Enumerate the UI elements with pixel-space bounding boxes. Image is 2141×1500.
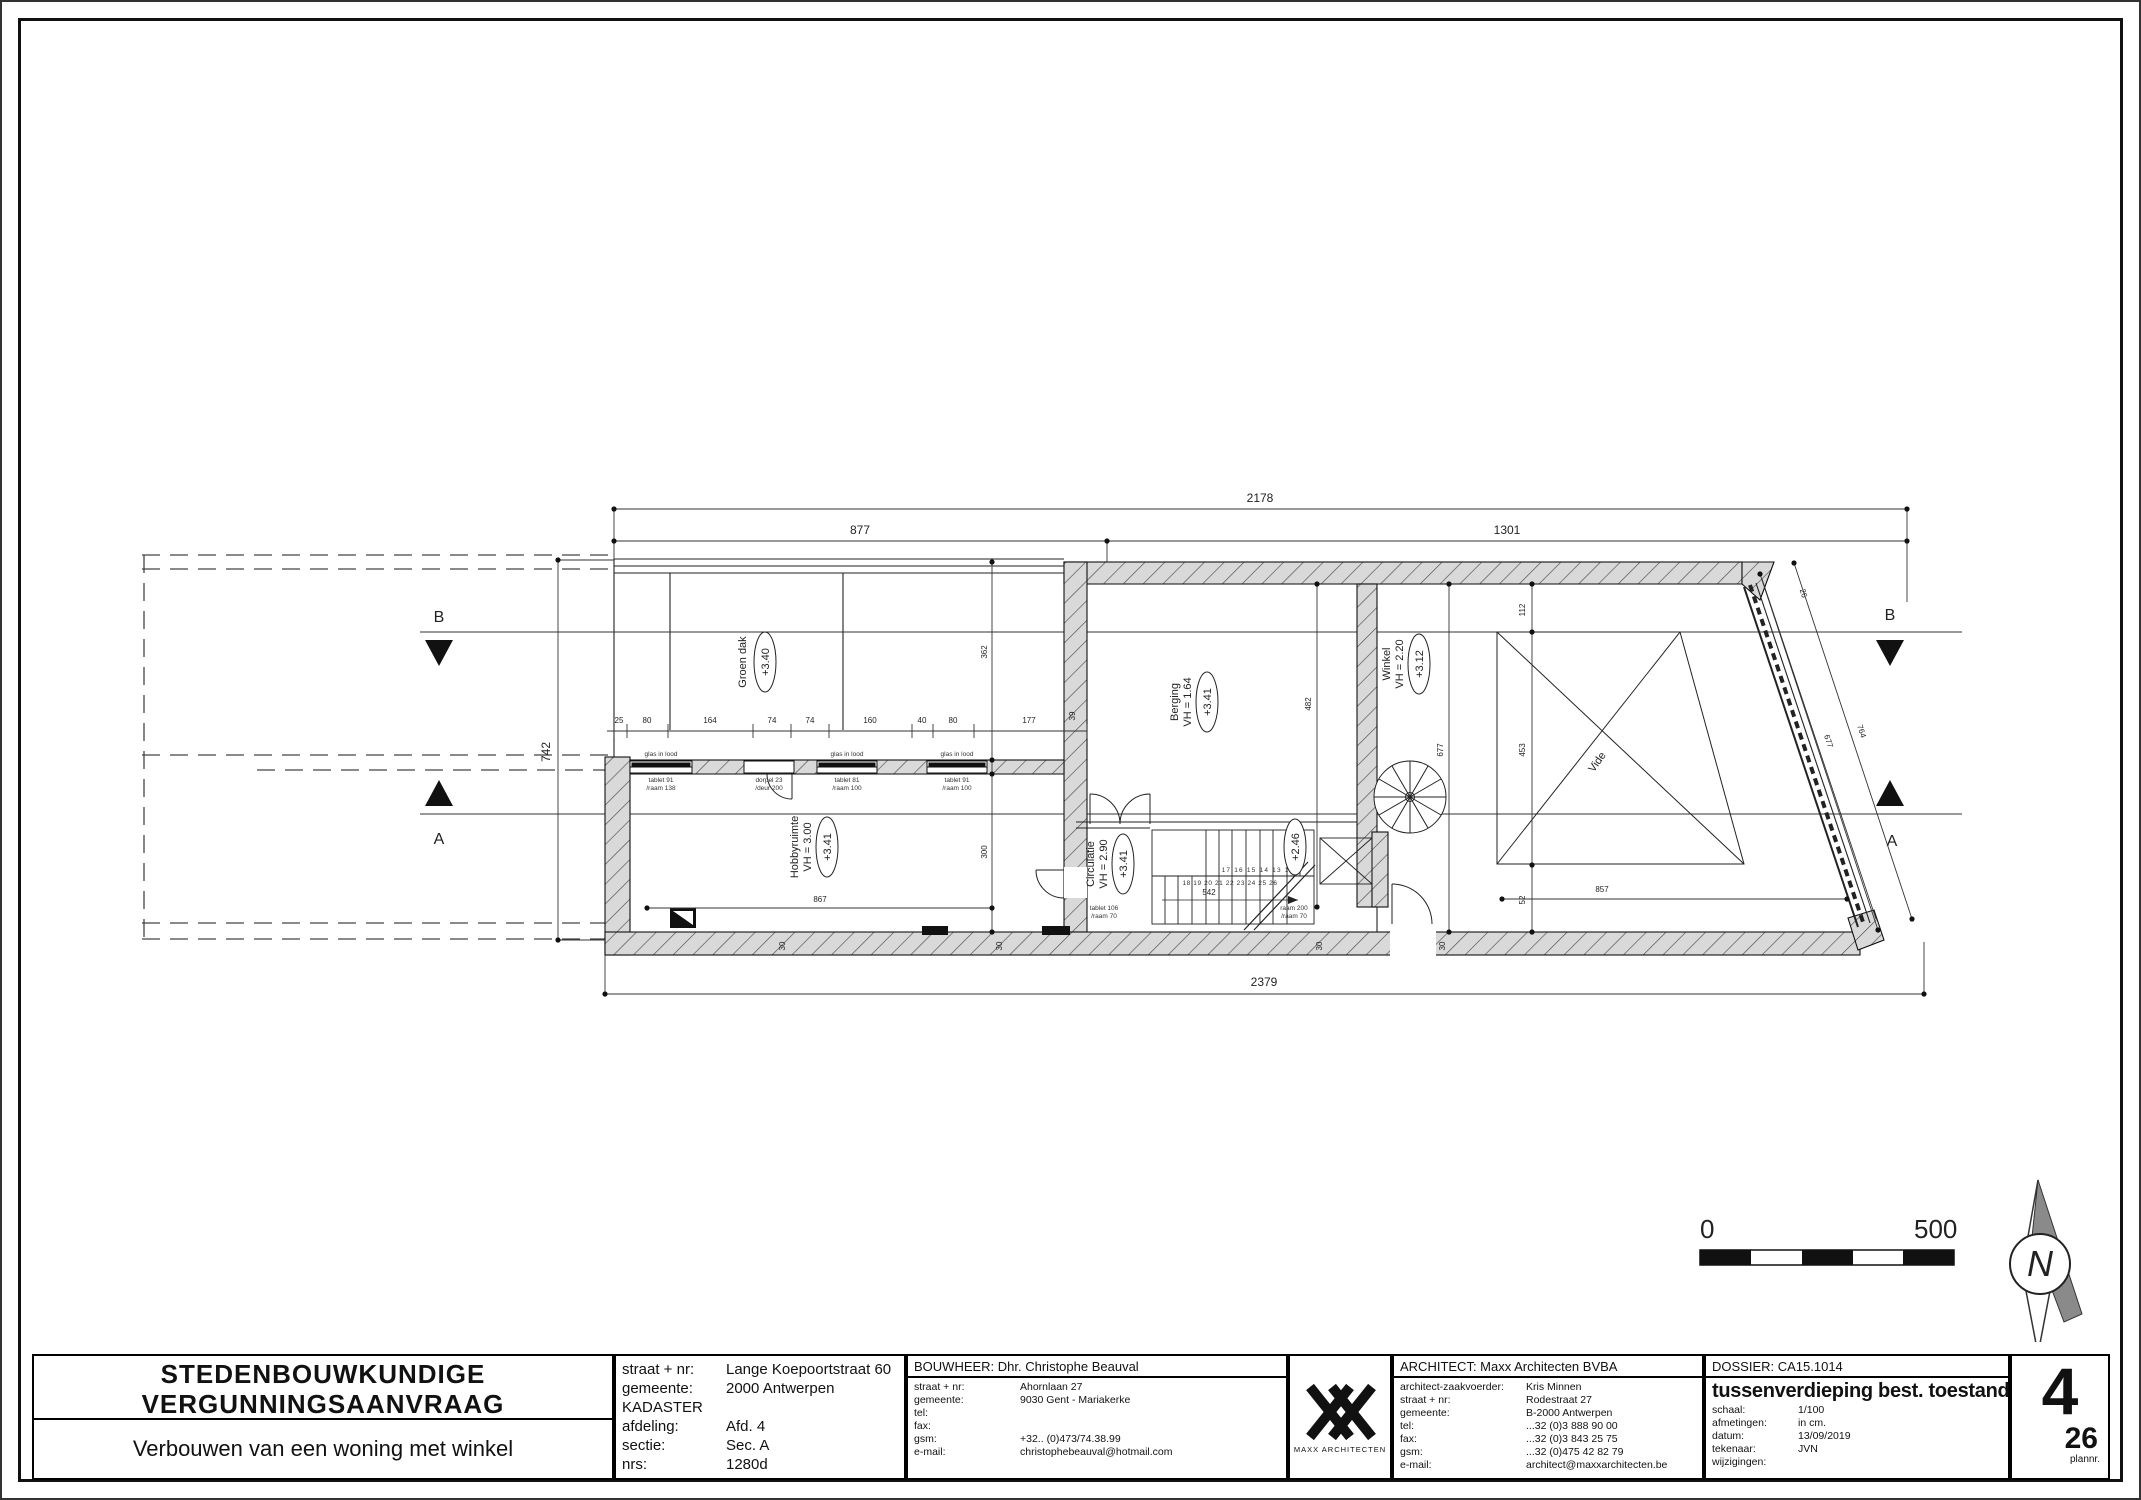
dossier-row: wijzigingen:: [1712, 1456, 2002, 1469]
dossier-row: datum:13/09/2019: [1712, 1430, 2002, 1443]
dim-2379: 2379: [1251, 975, 1278, 989]
field-label: datum:: [1712, 1430, 1798, 1443]
bouwheer-box: BOUWHEER: Dhr. Christophe Beauval straat…: [906, 1354, 1288, 1480]
field-label: gemeente:: [1400, 1407, 1526, 1420]
fixture-label: /raam 100: [832, 785, 862, 792]
architect-logo-box: MAXX ARCHITECTEN: [1288, 1354, 1392, 1480]
architect-row: fax:...32 (0)3 843 25 75: [1400, 1433, 1696, 1446]
field-label: nrs:: [622, 1455, 726, 1474]
spiral-stair: [1374, 761, 1446, 833]
room-level: +3.40: [760, 648, 772, 676]
sheet-number: 4: [2012, 1356, 2108, 1422]
dim-482: 482: [1304, 697, 1313, 711]
field-value: in cm.: [1798, 1417, 1826, 1429]
field-label: fax:: [914, 1420, 1020, 1433]
room-level: +3.41: [1202, 688, 1214, 716]
scale-start-label: 0: [1700, 1214, 1714, 1244]
dim-30: 30: [778, 941, 787, 950]
dim-30: 30: [1315, 941, 1324, 950]
section-label-a: A: [434, 831, 445, 848]
field-value: 1280d: [726, 1456, 768, 1473]
dim-857: 857: [1595, 885, 1609, 894]
fixture-label: /raam 70: [1091, 913, 1117, 920]
field-value: 1/100: [1798, 1404, 1824, 1416]
dossier-row: afmetingen:in cm.: [1712, 1417, 2002, 1430]
bouwheer-row: gemeente:9030 Gent - Mariakerke: [914, 1394, 1280, 1407]
field-value: Lange Koepoortstraat 60: [726, 1361, 891, 1378]
section-marker-b-right: B: [1876, 607, 1904, 666]
field-label: sectie:: [622, 1436, 726, 1455]
room-name: Hobbyruimte: [789, 816, 801, 878]
field-value: christophebeauval@hotmail.com: [1020, 1446, 1173, 1458]
site-row: afdeling:Afd. 4: [622, 1417, 898, 1436]
field-value: architect@maxxarchitecten.be: [1526, 1459, 1667, 1471]
stair-tread-numbers-upper: 17 16 15 14 13 12: [1222, 867, 1295, 874]
room-label-vide: Vide: [1586, 750, 1608, 775]
field-value: Afd. 4: [726, 1418, 765, 1435]
logo-caption: MAXX ARCHITECTEN: [1294, 1445, 1386, 1454]
dossier-header: DOSSIER: CA15.1014: [1706, 1356, 2008, 1378]
field-label: afdeling:: [622, 1417, 726, 1436]
dim-1301: 1301: [1494, 523, 1521, 537]
field-label: gemeente:: [622, 1379, 726, 1398]
room-label-groen-dak: Groen dak +3.40: [737, 632, 776, 692]
fixture-label: /raam 138: [646, 785, 676, 792]
site-info-box: straat + nr:Lange Koepoortstraat 60 geme…: [614, 1354, 906, 1480]
dim-39: 39: [1068, 711, 1077, 720]
field-value: +32.. (0)473/74.38.99: [1020, 1433, 1121, 1445]
field-label: afmetingen:: [1712, 1417, 1798, 1430]
site-row: straat + nr:Lange Koepoortstraat 60: [622, 1360, 898, 1379]
field-label: wijzigingen:: [1712, 1456, 1798, 1469]
field-value: 13/09/2019: [1798, 1430, 1851, 1442]
dim-chain: 40: [918, 716, 927, 725]
application-title-line1: STEDENBOUWKUNDIGE: [34, 1359, 612, 1389]
plannr-label: plannr.: [2012, 1454, 2108, 1465]
room-name: Groen dak: [737, 636, 749, 688]
room-level: +3.12: [1414, 650, 1426, 678]
bouwheer-row: e-mail:christophebeauval@hotmail.com: [914, 1446, 1280, 1459]
maxx-logo-icon: [1300, 1381, 1380, 1443]
sheet-total: 26: [2012, 1424, 2108, 1454]
field-label: schaal:: [1712, 1404, 1798, 1417]
dim-diag-764: 764: [1855, 723, 1868, 739]
field-value: Kris Minnen: [1526, 1381, 1581, 1393]
fixture-label: tablet 81: [835, 777, 860, 784]
dim-362: 362: [980, 645, 989, 659]
field-label: tel:: [914, 1407, 1020, 1420]
field-value: 9030 Gent - Mariakerke: [1020, 1394, 1130, 1406]
dim-chain: 80: [949, 716, 958, 725]
field-value: JVN: [1798, 1443, 1818, 1455]
section-label-b: B: [1885, 607, 1896, 624]
bouwheer-row: straat + nr:Ahornlaan 27: [914, 1381, 1280, 1394]
north-label: N: [2027, 1243, 2054, 1284]
bouwheer-row: gsm:+32.. (0)473/74.38.99: [914, 1433, 1280, 1446]
dim-30: 30: [1438, 941, 1447, 950]
field-label: gsm:: [1400, 1446, 1526, 1459]
dim-867: 867: [813, 895, 827, 904]
title-block: STEDENBOUWKUNDIGE VERGUNNINGSAANVRAAG Ve…: [32, 1354, 2110, 1480]
dossier-box: DOSSIER: CA15.1014 tussenverdieping best…: [1704, 1354, 2010, 1480]
room-label-berging: Berging VH = 1.64 +3.41: [1169, 672, 1218, 732]
dim-chain: 160: [863, 716, 877, 725]
site-row: sectie:Sec. A: [622, 1436, 898, 1455]
architect-row: gsm:...32 (0)475 42 82 79: [1400, 1446, 1696, 1459]
application-title: STEDENBOUWKUNDIGE VERGUNNINGSAANVRAAG: [34, 1356, 612, 1420]
room-name: Winkel: [1381, 647, 1393, 680]
field-value: Sec. A: [726, 1437, 769, 1454]
dim-chain: 164: [703, 716, 717, 725]
drawing-sheet: B A B A: [0, 0, 2141, 1500]
fixture-label: /raam 70: [1281, 913, 1307, 920]
room-vh: VH = 3.00: [802, 822, 814, 871]
field-value: Ahornlaan 27: [1020, 1381, 1082, 1393]
dim-chain: 74: [806, 716, 815, 725]
field-value: ...32 (0)3 843 25 75: [1526, 1433, 1618, 1445]
architect-box: ARCHITECT: Maxx Architecten BVBA archite…: [1392, 1354, 1704, 1480]
field-value: ...32 (0)475 42 82 79: [1526, 1446, 1624, 1458]
architect-row: gemeente:B-2000 Antwerpen: [1400, 1407, 1696, 1420]
floor-plan: B A B A: [2, 2, 2141, 1342]
scale-bar: 0 500: [1700, 1214, 1957, 1265]
dossier-row: schaal:1/100: [1712, 1404, 2002, 1417]
stair-run-label: 542: [1202, 888, 1216, 897]
field-label: architect-zaakvoerder:: [1400, 1381, 1526, 1394]
wall-details: [670, 908, 1070, 935]
field-label: e-mail:: [914, 1446, 1020, 1459]
sheet-number-box: 4 26 plannr.: [2010, 1354, 2110, 1480]
fixture-label: dorpel 23: [755, 777, 782, 784]
application-title-line2: VERGUNNINGSAANVRAAG: [34, 1389, 612, 1419]
room-vh: VH = 2.90: [1098, 839, 1110, 888]
section-label-b: B: [434, 609, 445, 626]
architect-row: tel:...32 (0)3 888 90 00: [1400, 1420, 1696, 1433]
field-label: straat + nr:: [622, 1360, 726, 1379]
dim-742: 742: [539, 742, 553, 762]
architect-header: ARCHITECT: Maxx Architecten BVBA: [1394, 1356, 1702, 1378]
bouwheer-row: tel:: [914, 1407, 1280, 1420]
dim-diag-677: 677: [1822, 733, 1835, 749]
vide-void: [1497, 632, 1744, 864]
field-label: fax:: [1400, 1433, 1526, 1446]
dim-453: 453: [1518, 743, 1527, 757]
fixture-label: tablet 91: [945, 777, 970, 784]
section-marker-b-left: B: [425, 609, 453, 666]
dim-diag-26: 26: [1798, 588, 1809, 600]
room-label-circulatie: Circulatie VH = 2.90 +3.41: [1085, 834, 1134, 894]
dim-total-top: 2178: [1247, 491, 1274, 505]
dim-52: 52: [1518, 895, 1527, 904]
north-arrow: N: [2010, 1180, 2082, 1342]
field-label: gemeente:: [914, 1394, 1020, 1407]
dossier-row: tekenaar:JVN: [1712, 1443, 2002, 1456]
stair-level-label: +2.46: [1284, 819, 1306, 875]
architect-row: straat + nr:Rodestraat 27: [1400, 1394, 1696, 1407]
fixture-label: tablet 106: [1090, 905, 1119, 912]
glas-in-lood-label: glas in lood: [831, 751, 864, 758]
field-label: straat + nr:: [1400, 1394, 1526, 1407]
dim-877: 877: [850, 523, 870, 537]
room-vh: VH = 2.20: [1394, 639, 1406, 688]
site-row: nrs:1280d: [622, 1455, 898, 1474]
dim-677: 677: [1436, 743, 1445, 757]
stair-tread-numbers-lower: 18 19 20 21 22 23 24 25 26: [1182, 880, 1277, 887]
field-label: gsm:: [914, 1433, 1020, 1446]
dim-112: 112: [1518, 603, 1527, 616]
bouwheer-header: BOUWHEER: Dhr. Christophe Beauval: [908, 1356, 1286, 1378]
drawing-title: tussenverdieping best. toestand: [1706, 1378, 2008, 1404]
field-label: tekenaar:: [1712, 1443, 1798, 1456]
fixture-label: /raam 100: [942, 785, 972, 792]
fixture-label: raam 200: [1280, 905, 1308, 912]
field-value: ...32 (0)3 888 90 00: [1526, 1420, 1618, 1432]
fixture-label: tablet 91: [649, 777, 674, 784]
project-description: Verbouwen van een woning met winkel: [34, 1420, 612, 1462]
site-row: KADASTER: [622, 1398, 898, 1417]
field-label: straat + nr:: [914, 1381, 1020, 1394]
field-value: Rodestraat 27: [1526, 1394, 1592, 1406]
room-name: Circulatie: [1085, 841, 1097, 887]
field-value: B-2000 Antwerpen: [1526, 1407, 1612, 1419]
glas-in-lood-label: glas in lood: [645, 751, 678, 758]
bouwheer-row: fax:: [914, 1420, 1280, 1433]
dim-chain: 74: [768, 716, 777, 725]
site-row: gemeente:2000 Antwerpen: [622, 1379, 898, 1398]
room-name: Berging: [1169, 683, 1181, 721]
field-value: 2000 Antwerpen: [726, 1380, 834, 1397]
dim-300: 300: [980, 845, 989, 859]
fixture-label: /deur 200: [755, 785, 783, 792]
dim-chain: 80: [643, 716, 652, 725]
dim-chain: 25: [615, 716, 624, 725]
dim-chain: 177: [1022, 716, 1036, 725]
field-label: tel:: [1400, 1420, 1526, 1433]
room-label-winkel: Winkel VH = 2.20 +3.12: [1381, 634, 1430, 694]
level-value: +2.46: [1290, 833, 1302, 861]
architect-row: e-mail:architect@maxxarchitecten.be: [1400, 1459, 1696, 1472]
dim-30: 30: [995, 941, 1004, 950]
application-box: STEDENBOUWKUNDIGE VERGUNNINGSAANVRAAG Ve…: [32, 1354, 614, 1480]
room-label-hobbyruimte: Hobbyruimte VH = 3.00 +3.41: [789, 816, 838, 878]
glas-in-lood-label: glas in lood: [941, 751, 974, 758]
field-label: KADASTER: [622, 1398, 726, 1417]
room-vh: VH = 1.64: [1182, 677, 1194, 726]
field-label: e-mail:: [1400, 1459, 1526, 1472]
section-marker-a-right: A: [1876, 780, 1904, 850]
architect-row: architect-zaakvoerder:Kris Minnen: [1400, 1381, 1696, 1394]
room-level: +3.41: [822, 833, 834, 861]
room-level: +3.41: [1118, 850, 1130, 878]
scale-end-label: 500: [1914, 1214, 1957, 1244]
